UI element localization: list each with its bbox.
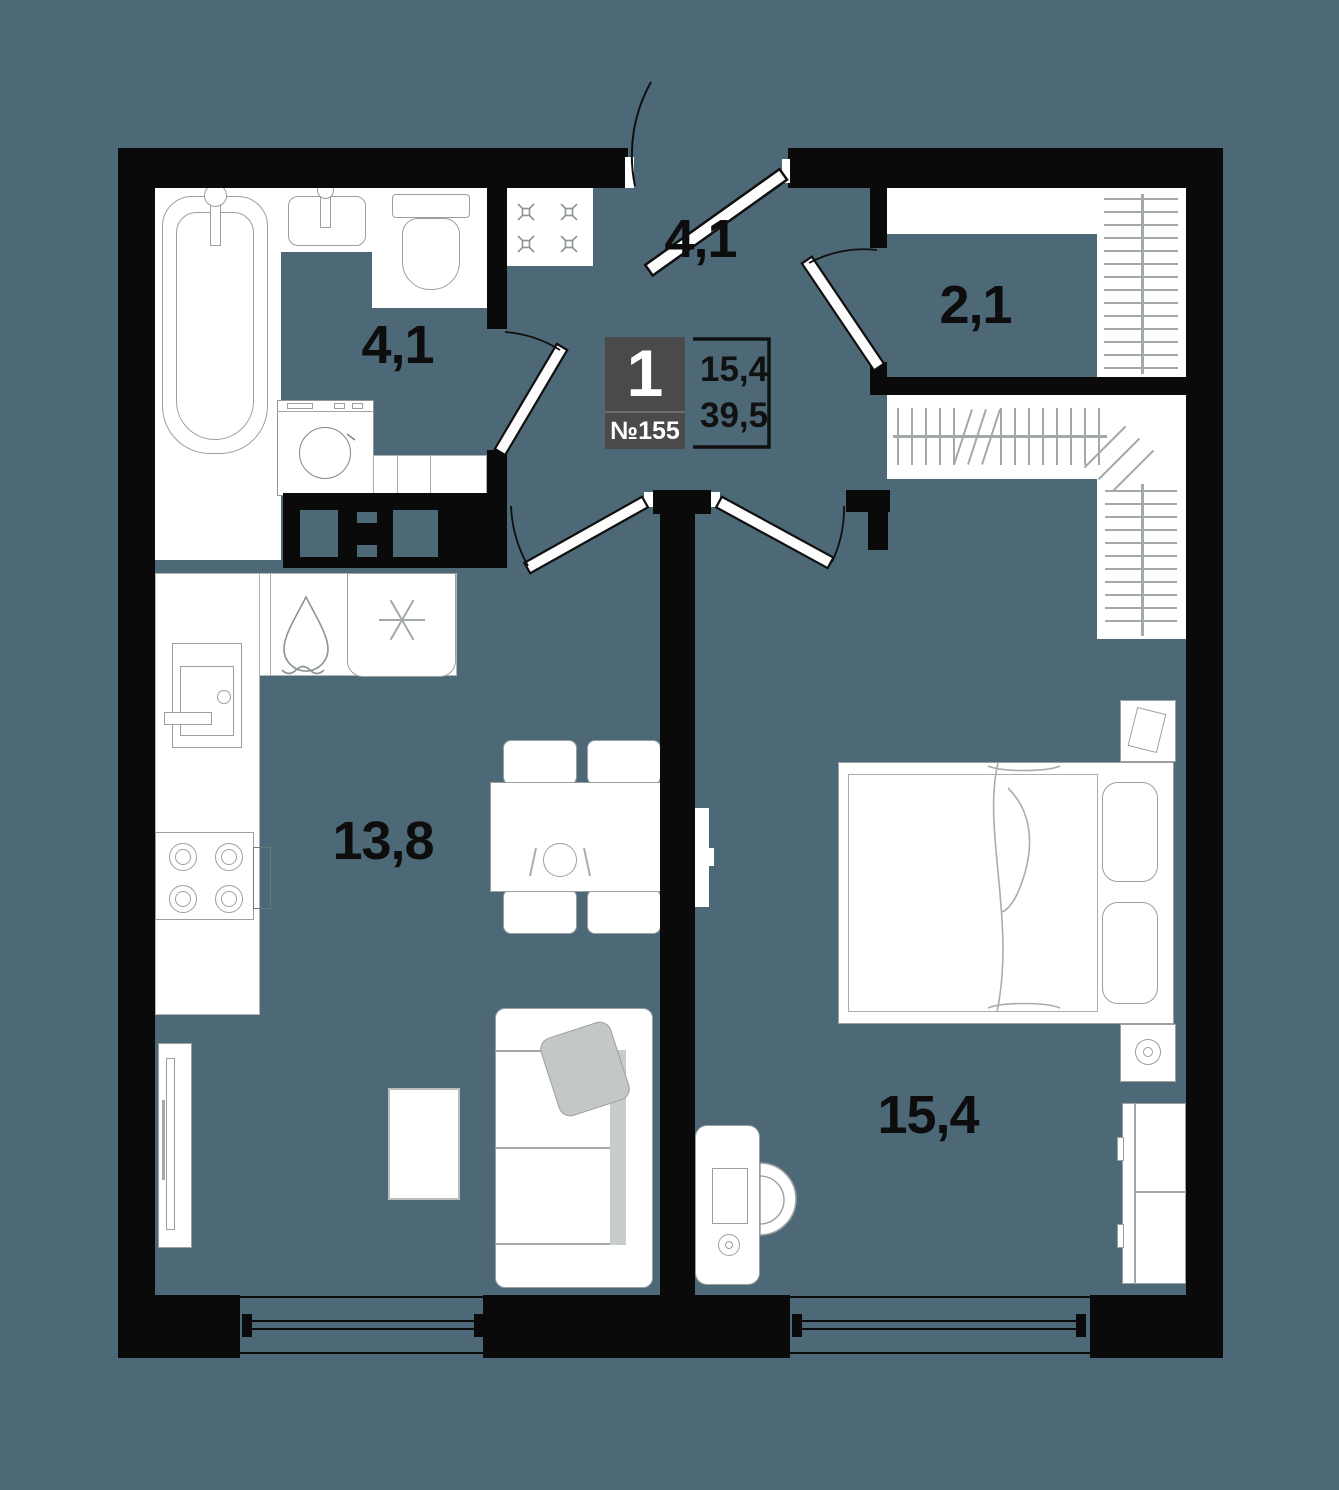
bed-pillow-icon bbox=[1102, 902, 1158, 1004]
washer-control bbox=[287, 403, 313, 409]
counter-seam bbox=[397, 455, 398, 495]
entrance-jamb bbox=[782, 159, 790, 183]
burner-inner bbox=[175, 891, 191, 907]
hanger-rail-icon bbox=[897, 408, 955, 465]
room-label-kitchen-living: 13,8 bbox=[298, 814, 468, 868]
tv-icon bbox=[695, 808, 709, 907]
shaft-opening bbox=[393, 510, 438, 557]
wall-bathroom bbox=[487, 188, 507, 329]
radiator-fin bbox=[166, 1058, 175, 1230]
room-label-hallway: 4,1 bbox=[628, 212, 773, 266]
wall-bottom bbox=[1090, 1295, 1223, 1358]
shaft-opening bbox=[300, 510, 338, 557]
entrance-jamb bbox=[625, 157, 634, 188]
mattress bbox=[848, 774, 1098, 1012]
hanger-rail-icon bbox=[1000, 408, 1103, 465]
rooms-count: 1 bbox=[605, 337, 685, 409]
washer-control bbox=[352, 403, 363, 409]
washer-panel-line bbox=[277, 411, 374, 412]
coffee-table-icon bbox=[388, 1088, 460, 1200]
chair-icon bbox=[503, 740, 577, 785]
toilet-icon bbox=[402, 218, 460, 290]
bed-pillow-icon bbox=[1102, 782, 1158, 882]
burner-inner bbox=[221, 849, 237, 865]
door-jamb bbox=[711, 492, 720, 507]
window-glazing bbox=[250, 1320, 476, 1322]
window-jamb bbox=[474, 1314, 484, 1337]
wall-right bbox=[1186, 148, 1223, 1358]
hob-icon bbox=[505, 188, 593, 266]
washer-control bbox=[334, 403, 345, 409]
wall-wardrobe-bottom bbox=[870, 377, 1186, 395]
unit-number: №155 bbox=[605, 417, 685, 446]
shaft-notch bbox=[357, 512, 377, 523]
sofa-seat-seam bbox=[495, 1147, 610, 1149]
radiator-fin bbox=[162, 1100, 165, 1180]
window-glazing bbox=[250, 1328, 476, 1330]
counter-seam bbox=[270, 573, 271, 676]
window-sill-line bbox=[240, 1352, 483, 1354]
total-area-value: 39,5 bbox=[700, 398, 768, 433]
lamp-inner bbox=[1143, 1047, 1153, 1057]
window-jamb bbox=[242, 1314, 252, 1337]
card-divider bbox=[605, 411, 685, 413]
wall-left bbox=[118, 148, 155, 1358]
wall-bottom bbox=[118, 1295, 240, 1358]
wall-partition bbox=[660, 505, 695, 1295]
living-area-value: 15,4 bbox=[700, 352, 768, 387]
wall-hall-stub bbox=[868, 492, 888, 550]
counter-seam bbox=[430, 455, 431, 495]
toilet-tank bbox=[392, 194, 470, 218]
room-label-wardrobe: 2,1 bbox=[903, 278, 1048, 332]
cabinet-handle bbox=[1117, 1224, 1124, 1248]
interior-door-icon bbox=[511, 497, 648, 574]
desk-chair-icon bbox=[760, 1163, 796, 1235]
kitchen-sink-handle bbox=[164, 712, 212, 725]
fridge-snowflake-icon bbox=[347, 573, 456, 677]
tv-mount bbox=[709, 848, 714, 866]
door-jamb bbox=[644, 492, 653, 507]
floor-plan: 4,1 4,1 2,1 13,8 15,4 1 №155 15,4 39,5 bbox=[0, 0, 1339, 1490]
chair-icon bbox=[503, 889, 577, 934]
chair-icon bbox=[587, 740, 661, 785]
dining-table-icon bbox=[490, 782, 665, 892]
interior-door-icon bbox=[802, 249, 884, 370]
wall-top-right bbox=[788, 148, 1223, 188]
unit-card: 1 №155 bbox=[605, 337, 685, 449]
kitchen-sink-drain bbox=[217, 690, 231, 704]
cabinet-divider bbox=[1134, 1103, 1136, 1284]
interior-door-icon bbox=[716, 497, 844, 568]
wall-wardrobe bbox=[870, 188, 887, 248]
cabinet-divider bbox=[1136, 1191, 1186, 1193]
window-glazing bbox=[800, 1320, 1078, 1322]
window-icon bbox=[790, 1296, 1090, 1298]
window-sill-line bbox=[790, 1352, 1090, 1354]
wall-bottom bbox=[483, 1295, 790, 1358]
burner-inner bbox=[175, 849, 191, 865]
bathtub-inner bbox=[176, 212, 254, 440]
window-icon bbox=[240, 1296, 483, 1298]
window-jamb bbox=[792, 1314, 802, 1337]
wall-top-left bbox=[118, 148, 628, 188]
kitchen-counter-left bbox=[155, 573, 260, 1015]
counter-edge bbox=[253, 847, 271, 909]
sofa-armrest-line bbox=[495, 1243, 626, 1245]
room-label-bathroom: 4,1 bbox=[325, 318, 470, 372]
hanger-rail-icon bbox=[1105, 490, 1177, 632]
interior-door-icon bbox=[495, 332, 567, 455]
wardrobe-rod bbox=[1141, 194, 1144, 374]
room-label-bedroom: 15,4 bbox=[843, 1088, 1013, 1142]
laptop bbox=[712, 1168, 748, 1224]
plate-icon bbox=[543, 843, 577, 877]
cabinet-icon bbox=[1122, 1103, 1186, 1284]
window-jamb bbox=[1076, 1314, 1086, 1337]
washer-drum bbox=[299, 427, 351, 479]
window-glazing bbox=[800, 1328, 1078, 1330]
shaft-notch bbox=[357, 545, 377, 557]
burner-inner bbox=[221, 891, 237, 907]
cabinet-handle bbox=[1117, 1137, 1124, 1161]
chair-icon bbox=[587, 889, 661, 934]
desk-knob-inner bbox=[725, 1241, 733, 1249]
